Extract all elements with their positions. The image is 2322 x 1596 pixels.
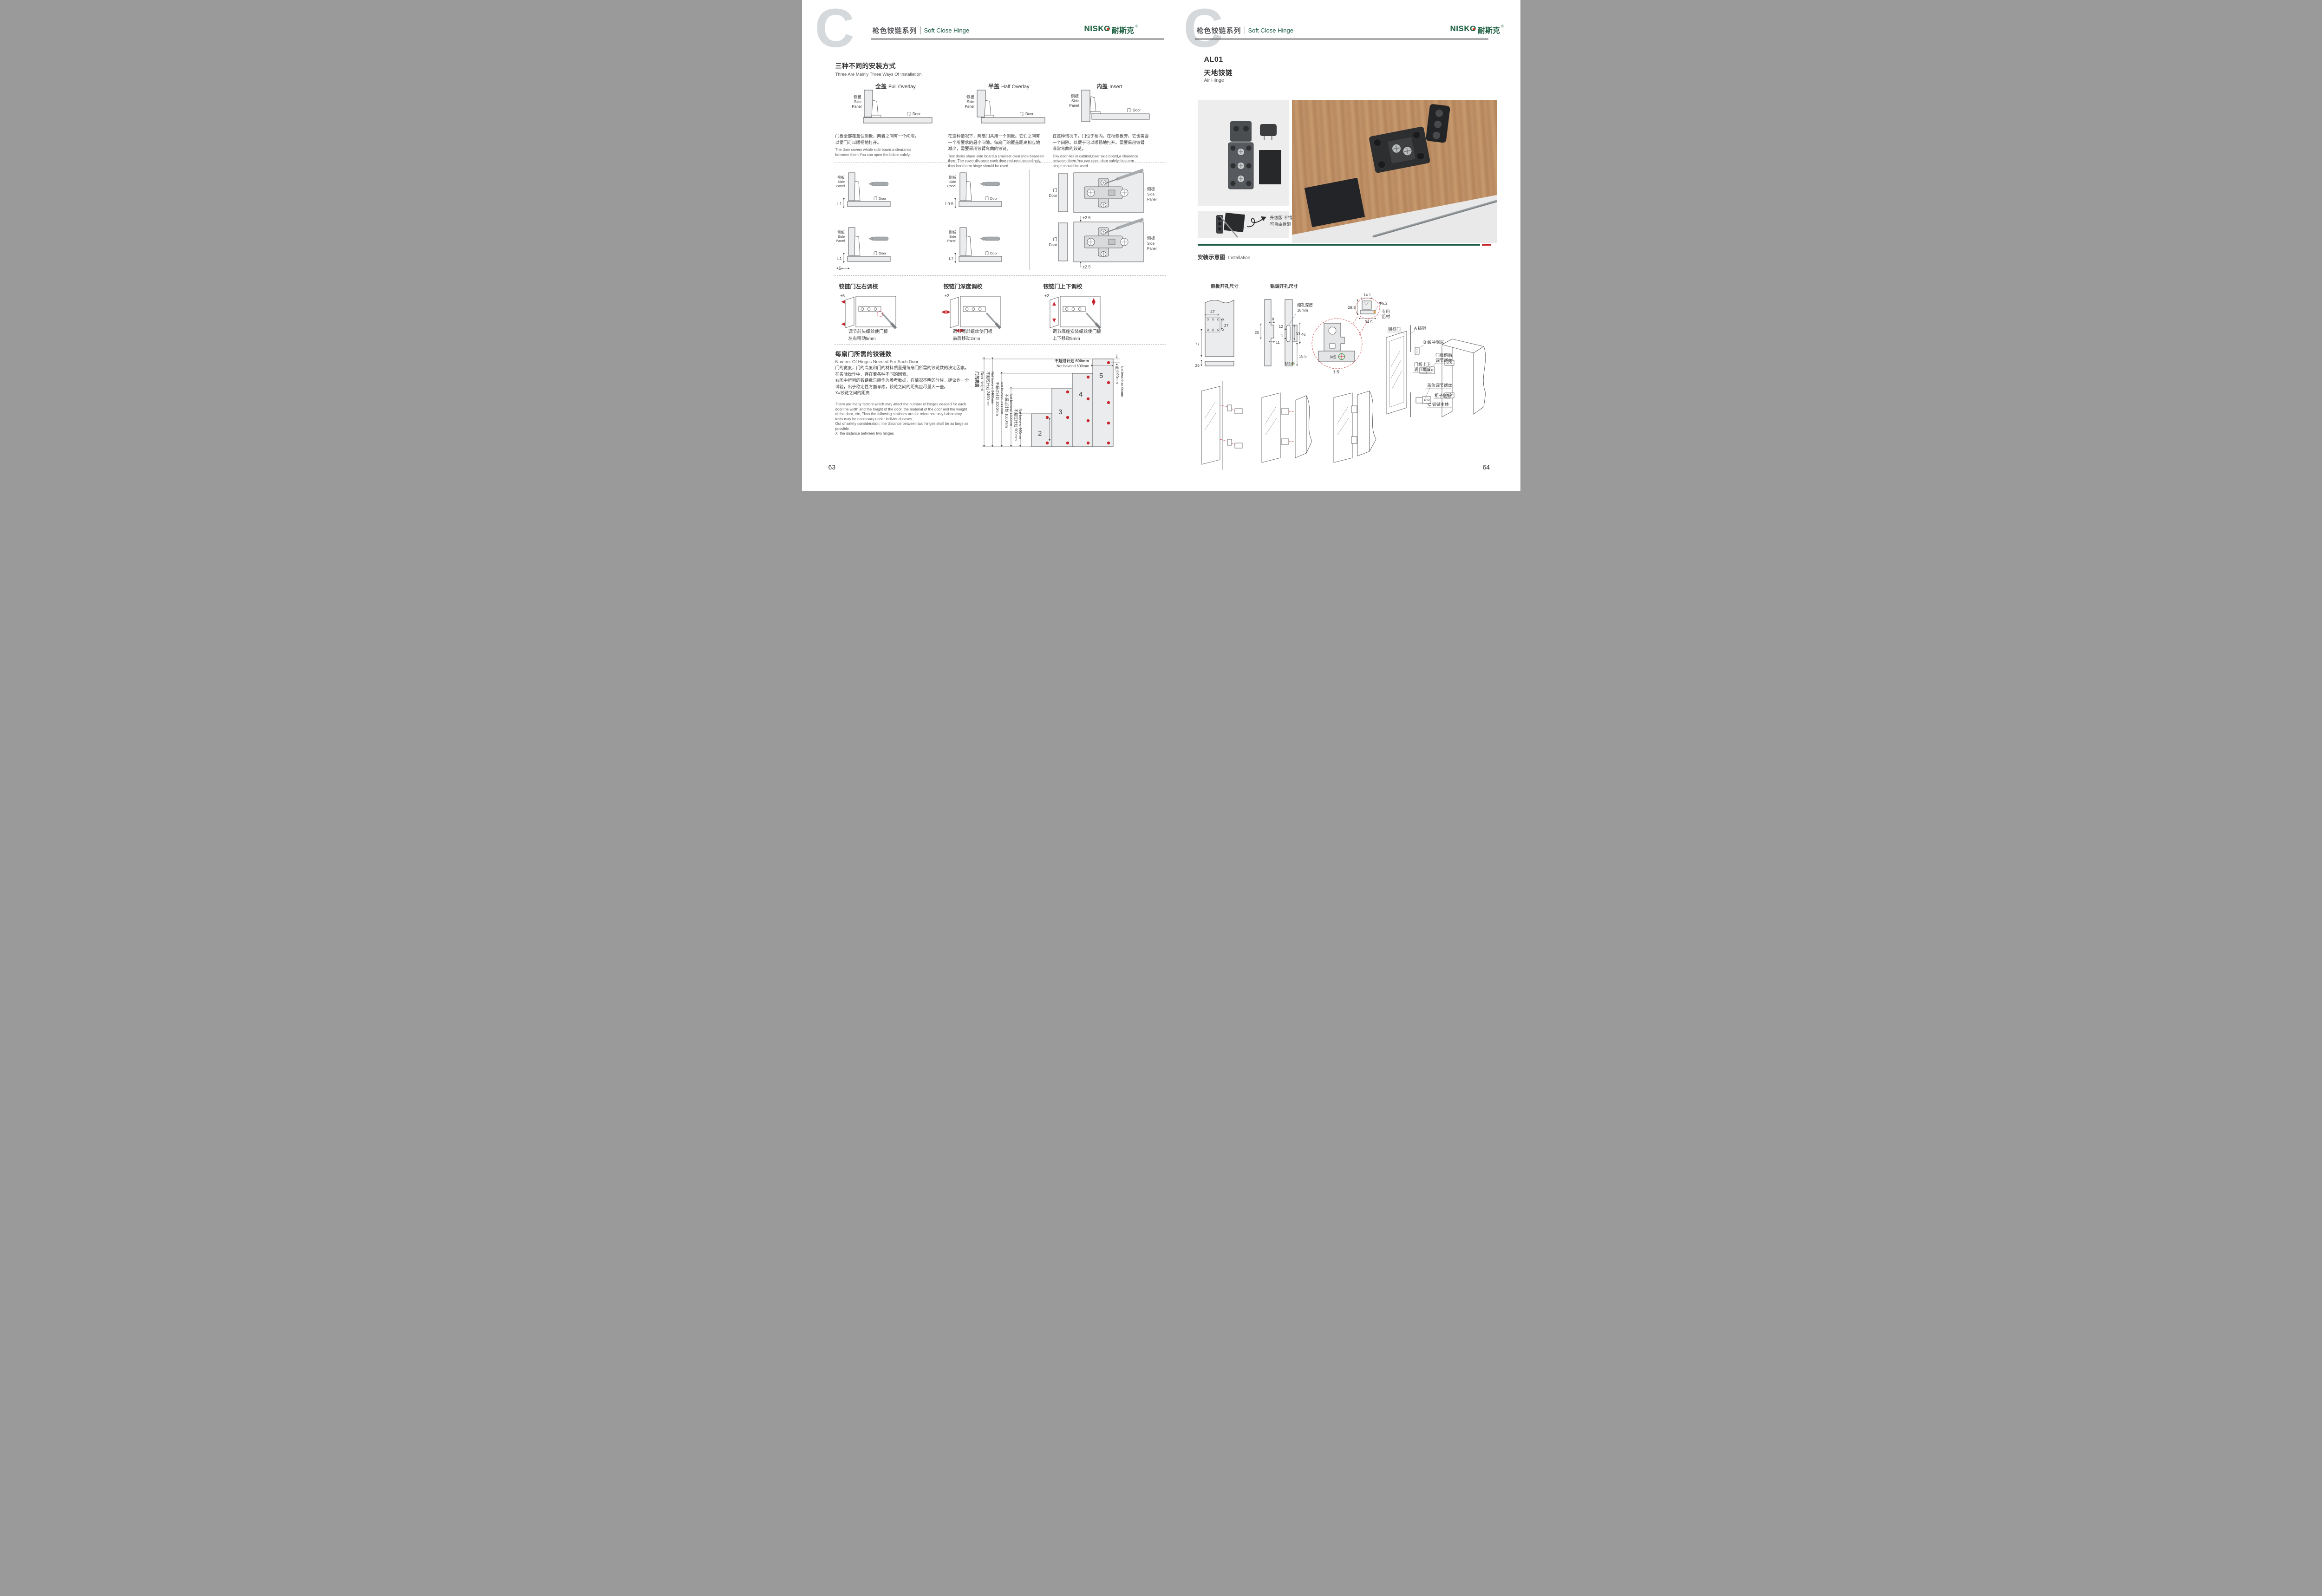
section-title-en: Number Of Hinges Needed For Each Door <box>835 359 919 365</box>
product-name-en: Air Hinge <box>1204 78 1224 83</box>
side-panel-label-en2: Panel <box>1069 104 1079 108</box>
install-block-half-overlay: 半盖 Half Overlay 侧板 Side Panel 门 Door 在这种… <box>948 83 1054 169</box>
accent-bar-green <box>1198 244 1480 246</box>
logo-registered-mark: ® <box>1501 24 1504 28</box>
door-label-cn: 门 <box>1053 237 1057 241</box>
door-shape <box>1092 114 1149 119</box>
limit-2400-cn: 不超过计划 2400mm <box>986 371 991 406</box>
door-label-cn: 门 <box>907 111 911 116</box>
bar-3-count: 3 <box>1058 408 1062 416</box>
installation-section-label: 安装示意图 Installation <box>1198 253 1251 261</box>
hinge-shape <box>985 100 991 116</box>
mounting-plate-diagram <box>1058 219 1143 262</box>
dim-label: L7 <box>948 256 953 261</box>
dim-label: L1 <box>837 256 841 261</box>
logo-red-dot-icon <box>1473 28 1475 30</box>
dim-28-9: 28.9 <box>1348 305 1356 310</box>
full-overlay-diagram: 全盖 Full Overlay 侧板 Side Panel 门 Door <box>835 83 941 125</box>
door-width-note-en: Not bevond 600mm <box>1057 364 1089 368</box>
door-label-cn: 门 <box>874 251 877 255</box>
side-panel-label-en2: Panel <box>835 184 845 188</box>
side-panel-label-en2: Panel <box>852 104 861 109</box>
door-label-cn: 门 <box>985 196 989 201</box>
limit-1600-en: Not bevond 1600mm <box>1009 394 1013 426</box>
door-shape <box>863 117 932 123</box>
dim-11: 11 <box>1276 340 1280 345</box>
mounting-plate-diagram <box>1058 170 1143 213</box>
side-panel-label-en1: Side <box>837 235 844 239</box>
adjust-ud-title: 铰链门上下调校 <box>1044 282 1083 290</box>
bar-4-hinges <box>1072 373 1093 447</box>
dim-20: 20 <box>1254 330 1259 335</box>
dim-label-extra: +5 <box>836 266 841 271</box>
side-panel-label-cn: 侧板 <box>949 175 956 180</box>
dim-8: 8 <box>1272 317 1274 321</box>
install-desc-cn: 门板全部覆盖住侧板，两者之间有一个间隙， 以便门可以顺畅地打开。 <box>835 133 941 146</box>
door-label-cn: 门 <box>985 251 989 255</box>
hinge-cup-shape <box>872 115 881 117</box>
tolerance-label: ±5 <box>840 293 845 298</box>
diagram-title-cn: 全盖 <box>874 83 886 90</box>
dim-46: 46 <box>1301 332 1306 337</box>
adjust-depth-caption: 调节尾部螺丝使门板前后移动2mm <box>953 328 993 342</box>
side-panel-drawing <box>1205 300 1234 357</box>
dim-27: 27 <box>1224 323 1229 328</box>
watermark-c-left: C <box>815 1 854 56</box>
side-panel-label-cn: 侧板 <box>837 230 845 235</box>
overlay-dimension-diagrams: 侧板 Side Panel 门 Door L1 侧板 Side Panel 门 … <box>835 167 1174 273</box>
dim-15-5: 15.5 <box>1299 354 1307 358</box>
adjustment-diagrams: ±5 ±2 ±2 <box>835 290 1174 329</box>
diagram-title-cn: 半盖 <box>988 83 999 90</box>
bar-3-hinges <box>1052 388 1072 447</box>
label-cabinet: 柜子侧板 <box>1435 393 1451 398</box>
dim-12: 12 <box>1278 324 1283 329</box>
install-desc-cn: 在这种情况下，两扇门共用一个侧板。它们之间有 一个所要求的最小间隙。每扇门的覆盖… <box>948 133 1054 152</box>
door-label-en: Door <box>879 196 887 201</box>
limit-900-cn: 不超过计划 900mm <box>1014 409 1018 441</box>
side-panel-label-cn: 侧板 <box>837 175 845 180</box>
hinge-count-chart: 门的高度 Door height 不超过计划 2400mm Not bevond… <box>967 347 1125 466</box>
adjust-ud-caption: 调节底座安装螺丝使门板上下移动5mm <box>1053 328 1102 342</box>
overlay-cell-shape <box>959 173 1002 207</box>
door-label-en: Door <box>1049 243 1057 247</box>
overlay-cell-shape <box>959 228 1002 261</box>
installation-label-en: Installation <box>1228 255 1251 261</box>
mini-profile <box>1362 301 1371 309</box>
detail-base <box>1318 351 1355 361</box>
brand-logo: NISKO 耐斯克 ® <box>1084 24 1138 35</box>
side-panel-label-en1: Side <box>854 100 861 104</box>
logo-red-dot-icon <box>1107 28 1109 30</box>
side-panel-label-en1: Side <box>949 180 956 184</box>
adjust-depth-title: 铰链门深度调校 <box>944 282 983 290</box>
hinge-shape <box>1090 97 1096 111</box>
install-block-insert: 内盖 Insert 侧板 Side Panel 门 Door 在这种情况下，门位… <box>1053 83 1170 169</box>
axis-label-en: Door height <box>980 371 984 391</box>
adjust-depth-diagram: ±2 <box>941 293 1000 332</box>
label-damper: B 缓冲阻尼 <box>1423 339 1444 345</box>
alu-profile-1 <box>1265 300 1274 366</box>
header-rule-right <box>1195 39 1488 39</box>
dim-33: 33 <box>1296 332 1300 336</box>
side-panel-label-cn: 侧板 <box>1070 94 1079 98</box>
header-left: 枪色铰链系列 Soft Close Hinge <box>873 26 970 35</box>
label-cover-screw: 盖位调节螺丝 <box>1427 383 1452 388</box>
limit-2000-en: Not bevond 2000mm <box>1000 382 1004 414</box>
adjust-lr-title: 铰链门左右调校 <box>839 282 878 290</box>
hinge-count-desc-en: There are many factors which may affect … <box>835 402 979 436</box>
door-label-en: Door <box>1025 112 1034 116</box>
product-photo-parts <box>1198 100 1289 206</box>
hinge-count-title: 每扇门所需的铰链数 Number Of Hinges Needed For Ea… <box>835 349 919 365</box>
brand-logo: NISKO 耐斯克 ® <box>1450 24 1504 35</box>
label-hinge-body: C 铰链主体 <box>1428 402 1449 407</box>
header-rule-left <box>871 39 1164 39</box>
logo-cn-text: 耐斯克 <box>1478 24 1500 35</box>
door-label-cn: 门 <box>874 196 877 201</box>
section-title-cn: 三种不同的安装方式 <box>835 61 922 71</box>
detail-scale: 1:5 <box>1333 370 1339 375</box>
label-up-down-1: 门板上下 <box>1414 362 1431 367</box>
slot-depth-note-2: 18mm <box>1297 308 1308 313</box>
install-desc-en: The door covers whole side board,a clear… <box>835 148 941 157</box>
header-right: 枪色铰链系列 Soft Close Hinge <box>1197 26 1294 35</box>
tolerance-label: ±2 <box>945 293 949 298</box>
door-label-cn: 门 <box>1019 111 1024 116</box>
side-panel-label-en2: Panel <box>965 104 974 109</box>
overlay-cell-shape <box>848 228 890 261</box>
section-title-en: Three Are Mainly Three Ways Of Installat… <box>835 72 922 77</box>
accent-bar-red <box>1482 244 1491 246</box>
side-panel-label-en1: Side <box>966 100 974 104</box>
side-panel-label-en2: Panel <box>1147 197 1157 202</box>
divider-dashed <box>835 344 1166 345</box>
divider-dashed <box>835 163 1166 163</box>
half-overlay-diagram: 半盖 Half Overlay 侧板 Side Panel 门 Door <box>948 83 1054 125</box>
install-block-full-overlay: 全盖 Full Overlay 侧板 Side Panel 门 Door 门板全… <box>835 83 941 157</box>
header-divider <box>920 26 921 34</box>
product-photo-scene <box>1292 100 1497 243</box>
side-panel-label-en1: Side <box>837 180 844 184</box>
logo-registered-mark: ® <box>1135 24 1138 28</box>
assembly-steps <box>1201 381 1376 470</box>
limit-900-en: Not bevond 900mm <box>1018 409 1023 439</box>
logo-cn-text: 耐斯克 <box>1112 24 1134 35</box>
bottom-strip <box>1205 361 1234 366</box>
dim-47: 47 <box>1210 309 1215 314</box>
diagram-title-en: Full Overlay <box>888 84 916 90</box>
divider-dashed <box>835 275 1166 276</box>
install-desc-cn: 在这种情况下，门位于柜内，在柜侧板旁。它也需要 一个间隙。以便于可以顺畅地打开。… <box>1053 133 1170 152</box>
series-title-en: Soft Close Hinge <box>1248 27 1294 34</box>
limit-1600-cn: 不超过计划 1600mm <box>1004 394 1009 428</box>
overlay-cell-shape <box>848 173 890 207</box>
side-panel-shape <box>1082 90 1090 122</box>
mini-plate <box>1360 310 1375 314</box>
diagram-title-cn: 内盖 <box>1096 83 1107 90</box>
series-title-cn: 枪色铰链系列 <box>1197 26 1241 35</box>
hinge-shape <box>872 100 878 116</box>
slot-depth-note-1: 槽孔深度 <box>1297 303 1313 307</box>
catalog-spread: C 枪色铰链系列 Soft Close Hinge NISKO 耐斯克 ® C … <box>802 0 1520 491</box>
adjust-lr-diagram: ±5 <box>840 293 896 328</box>
door-width-note-cn: 不超过计划 600mm <box>1054 358 1089 363</box>
door-label-en: Door <box>879 251 887 255</box>
hinge-parts-illustration <box>1198 100 1289 206</box>
side-panel-label-cn: 侧板 <box>949 230 956 235</box>
logo-nisko-text: NISKO <box>1450 24 1476 33</box>
edge-distance-cn: 至少90mm <box>1115 366 1119 384</box>
note-arrow-icon <box>1246 214 1269 228</box>
label-pin: A 插销 <box>1414 326 1426 331</box>
alu-note-2: 铝材 <box>1382 314 1390 319</box>
product-name-cn: 天地铰链 <box>1204 68 1233 78</box>
dim-25: 25 <box>1195 363 1200 368</box>
page-number-right: 64 <box>1483 463 1490 471</box>
dim-plus-minus-top: ±2.5 <box>1083 215 1090 220</box>
door-label-en: Door <box>1049 194 1057 198</box>
diagram-title-en: Half Overlay <box>1001 84 1030 90</box>
label-up-down-2: 调节螺丝 <box>1414 367 1431 372</box>
dim-34-9: 34.9 <box>1364 319 1372 324</box>
product-code: AL01 <box>1204 56 1223 64</box>
side-panel-label-en2: Panel <box>947 239 956 243</box>
installation-drawings: 侧板开孔尺寸 47 27 77 25 铝调开孔尺寸 8 20 11 12 1 <box>1195 276 1501 473</box>
series-title-cn: 枪色铰链系列 <box>873 26 917 35</box>
dim-dia-6-2: Φ6.2 <box>1379 301 1388 306</box>
side-drill-title: 侧板开孔尺寸 <box>1211 283 1239 289</box>
side-panel-label-en1: Side <box>949 235 956 239</box>
side-panel-label-en1: Side <box>1147 192 1155 196</box>
hinge-count-desc-cn: 门的宽度，门的高度和门的材料质量是每扇门所需的铰链数的决定因素。 在实际操作中，… <box>835 365 977 397</box>
bar-4-count: 4 <box>1079 391 1083 398</box>
side-panel-label-en1: Side <box>1071 99 1079 103</box>
dim-1: 1 <box>1281 333 1283 338</box>
limit-2400-en: Not bevond 2400mm <box>991 371 995 404</box>
page-number-left: 63 <box>828 463 836 471</box>
door-label-cn: 门 <box>1053 188 1057 192</box>
hinge-on-board <box>1362 100 1473 188</box>
door-label-en: Door <box>1133 108 1141 112</box>
adjust-lr-caption: 调节前头螺丝使门板左右移动5mm <box>848 328 888 342</box>
side-panel-label-en1: Side <box>1147 241 1155 246</box>
dim-plus-minus-bottom: ±2.5 <box>1083 265 1090 269</box>
door-label-en: Door <box>990 196 998 201</box>
diagram-title-en: Insert <box>1109 84 1122 90</box>
side-panel-label-cn: 侧板 <box>1147 187 1155 191</box>
side-panel-label-cn: 侧板 <box>966 95 974 99</box>
slot-hole <box>1286 325 1290 342</box>
side-panel-label-cn: 侧板 <box>1147 236 1155 241</box>
axis-label-cn: 门的高度 <box>975 371 979 388</box>
label-front-back-1: 门板前后 <box>1435 352 1452 358</box>
hinge-cup-shape <box>985 115 994 117</box>
detail-m5: M5 <box>1330 355 1336 359</box>
side-panel-label-en2: Panel <box>1147 247 1157 251</box>
label-alu-door: 铝框门 <box>1388 326 1401 332</box>
section-title-cn: 每扇门所需的铰链数 <box>835 349 919 358</box>
tolerance-label: ±2 <box>1044 293 1049 298</box>
bar-2-count: 2 <box>1038 430 1042 437</box>
hinge-cup-shape <box>1091 111 1100 114</box>
section-installation-ways-title: 三种不同的安装方式 Three Are Mainly Three Ways Of… <box>835 61 922 77</box>
installation-label-cn: 安装示意图 <box>1198 253 1226 261</box>
side-panel-label-en2: Panel <box>835 239 845 243</box>
door-label-en: Door <box>913 112 921 116</box>
dim-14-1: 14.1 <box>1363 293 1371 297</box>
door-label-cn: 门 <box>1127 108 1131 112</box>
side-panel-shape <box>864 90 873 117</box>
header-divider <box>1245 26 1245 34</box>
alu-drill-title: 铝调开孔尺寸 <box>1270 283 1298 289</box>
install-desc-en: Tow door lies in cabinet,near side board… <box>1053 154 1170 169</box>
edge-distance-en: Not less than 90mm <box>1120 366 1124 397</box>
door-shape <box>981 117 1045 123</box>
adjust-ud-diagram: ±2 <box>1044 293 1100 328</box>
series-title-en: Soft Close Hinge <box>924 27 970 34</box>
dim-label: L0.5 <box>945 202 953 206</box>
dim-label: L1 <box>837 202 841 206</box>
label-front-back-2: 调节螺丝 <box>1435 358 1452 363</box>
install-desc-en: Tow doors share side board,a smallest cl… <box>948 154 1054 169</box>
side-panel-label-en2: Panel <box>947 184 956 188</box>
insert-diagram: 内盖 Insert 侧板 Side Panel 门 Door <box>1053 83 1170 125</box>
side-panel-shape <box>977 90 985 117</box>
dim-m5: M5 <box>1285 361 1291 366</box>
side-panel-label-cn: 侧板 <box>853 95 861 99</box>
dim-77: 77 <box>1195 342 1200 346</box>
door-label-en: Door <box>990 251 998 255</box>
alu-note-1: 专用 <box>1382 309 1390 314</box>
bar-5-count: 5 <box>1099 372 1103 380</box>
limit-2000-cn: 不超过计划 2000mm <box>995 382 1000 416</box>
logo-nisko-text: NISKO <box>1084 24 1110 33</box>
